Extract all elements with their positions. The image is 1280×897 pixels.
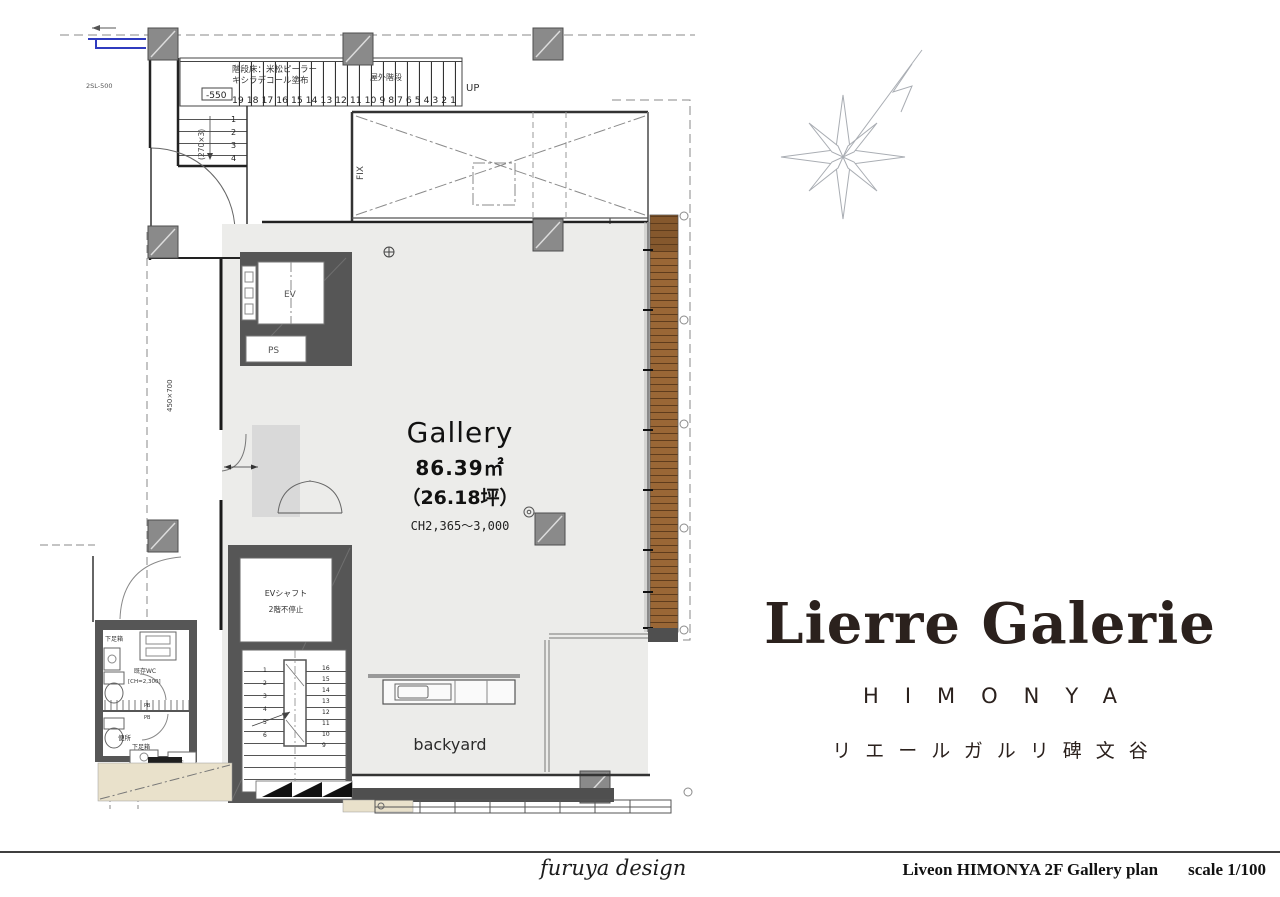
designer-signature: furuya design xyxy=(540,856,686,880)
footer-divider xyxy=(0,851,1280,853)
outdoor-stair-numbers: 19 18 17 16 15 14 13 12 11 10 9 8 7 6 5 … xyxy=(232,96,456,106)
room-label-block: Gallery 86.39㎡ （26.18坪） CH2,365～3,000 xyxy=(372,417,548,534)
landing-step: 1 xyxy=(231,115,236,124)
riser-dim: (270×3) xyxy=(197,129,206,160)
stair-step: 15 xyxy=(322,676,330,683)
shoe-box-label: 下足箱 xyxy=(105,635,123,643)
toilet-block: PS 下足箱 既存WC [CH=2,300] PB PB 便所 下足箱 xyxy=(93,556,197,772)
north-arrow xyxy=(781,50,922,219)
wc-upper-label: 既存WC xyxy=(134,667,156,675)
ev-shaft-label-1: EVシャフト xyxy=(265,589,308,598)
ceiling-height: CH2,365～3,000 xyxy=(372,517,548,534)
pb-label: PB xyxy=(144,715,151,721)
drawing-title: Liveon HIMONYA 2F Gallery plan xyxy=(902,860,1158,879)
room-name: Gallery xyxy=(372,417,548,449)
stair-step: 13 xyxy=(322,698,330,705)
landing-step: 2 xyxy=(231,128,236,137)
stair-step: 14 xyxy=(322,687,330,694)
ev-label: EV xyxy=(284,290,297,300)
stair-step: 16 xyxy=(322,665,330,672)
pb-label: PB xyxy=(144,703,151,709)
stair-note-1: 階段床：米松ピーラー xyxy=(232,64,317,75)
wood-deck xyxy=(643,212,688,642)
logo-subtitle: HIMONYA xyxy=(752,684,1228,708)
fix-label: FIX xyxy=(356,166,366,180)
stair-step: 2 xyxy=(263,680,267,687)
drawing-sheet: 階段床：米松ピーラー キシラデコール塗布 屋外階段 -550 19 18 17 … xyxy=(0,0,1280,897)
sl-label: 2SL-500 xyxy=(86,82,113,90)
logo-wordmark: Lierre Galerie xyxy=(752,578,1228,670)
stair-step: 11 xyxy=(322,720,330,727)
room-area-m2: 86.39㎡ xyxy=(372,452,548,481)
ev-shaft-label-2: 2階不停止 xyxy=(269,604,304,614)
utility-lines xyxy=(88,25,146,48)
title-block: Liveon HIMONYA 2F Gallery planscale 1/10… xyxy=(902,860,1266,880)
wc-ch-label: [CH=2,300] xyxy=(128,679,161,685)
stair-step: 4 xyxy=(263,706,267,713)
brand-logo: Lierre Galerie HIMONYA リエールガルリ碑文谷 xyxy=(752,578,1228,763)
wc-lower-label: 便所 xyxy=(118,733,132,742)
elevator-core: EV PS xyxy=(240,252,352,366)
stair-step: 3 xyxy=(263,693,267,700)
left-dim: 450×700 xyxy=(166,379,174,412)
landing-step: 4 xyxy=(231,154,236,163)
datum-symbol xyxy=(384,247,394,257)
stair-step: 9 xyxy=(322,742,326,749)
outdoor-stair: 階段床：米松ピーラー キシラデコール塗布 屋外階段 -550 19 18 17 … xyxy=(86,58,479,106)
outdoor-stair-label: 屋外階段 xyxy=(370,72,402,82)
room-area-tsubo: （26.18坪） xyxy=(372,483,548,510)
backyard-label: backyard xyxy=(413,735,486,754)
stair-step: 1 xyxy=(263,667,267,674)
stair-step: 6 xyxy=(263,732,267,739)
drawing-scale: scale 1/100 xyxy=(1188,860,1266,879)
shoe-box-label-2: 下足箱 xyxy=(132,743,150,751)
landing-step: 3 xyxy=(231,141,236,150)
logo-japanese: リエールガルリ碑文谷 xyxy=(752,736,1228,763)
up-label: UP xyxy=(466,83,479,94)
ps-label: PS xyxy=(268,346,279,356)
level-label: -550 xyxy=(206,91,227,101)
stair-step: 5 xyxy=(263,719,267,726)
stair-core: EVシャフト 2階不停止 1 2 3 4 5 6 16 15 14 13 12 … xyxy=(228,545,352,803)
stair-step: 12 xyxy=(322,709,330,716)
stair-note-2: キシラデコール塗布 xyxy=(232,75,309,86)
stair-step: 10 xyxy=(322,731,330,738)
